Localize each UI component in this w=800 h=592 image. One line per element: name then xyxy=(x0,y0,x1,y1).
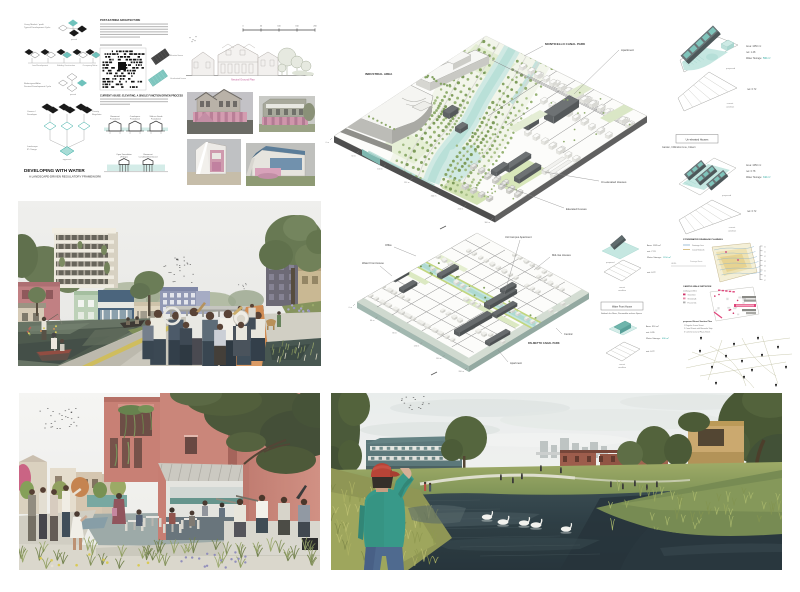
svg-text:condition: condition xyxy=(726,106,735,109)
svg-text:walkway profiles: walkway profiles xyxy=(683,290,697,293)
svg-text:Foundation: Foundation xyxy=(130,118,140,121)
svg-text:CAMPUS WALK NETWORK: CAMPUS WALK NETWORK xyxy=(683,285,712,288)
svg-text:Canal Network: Canal Network xyxy=(692,249,704,252)
svg-text:0 m: 0 m xyxy=(349,307,353,309)
svg-text:Land Development: Land Development xyxy=(32,64,48,67)
svg-text:proposed: proposed xyxy=(726,67,736,70)
svg-text:100 m: 100 m xyxy=(377,169,383,171)
svg-text:Setback for River, Permeable s: Setback for River, Permeable surface Spa… xyxy=(601,312,643,315)
svg-text:permit: permit xyxy=(70,93,76,96)
svg-text:310 m³: 310 m³ xyxy=(763,176,771,179)
svg-text:approval: approval xyxy=(63,158,72,161)
svg-text:Desired Development Cycle: Desired Development Cycle xyxy=(24,85,52,88)
svg-text:200 m: 200 m xyxy=(458,371,464,373)
svg-text:Owners /: Owners / xyxy=(27,110,36,113)
svg-text:Future link: Future link xyxy=(688,302,697,305)
svg-text:00: 00 xyxy=(764,247,766,249)
svg-text:Neutral Ground Plan: Neutral Ground Plan xyxy=(231,78,255,82)
svg-text:net: 0.95: net: 0.95 xyxy=(646,331,655,334)
svg-text:permit: permit xyxy=(71,38,77,41)
svg-text:current: current xyxy=(619,286,626,289)
svg-text:current: current xyxy=(729,226,736,229)
svg-text:06: 06 xyxy=(764,275,766,277)
svg-text:Water Storage:: Water Storage: xyxy=(746,57,762,60)
svg-text:Mid-rise Houses: Mid-rise Houses xyxy=(552,253,571,257)
svg-text:Developer: Developer xyxy=(27,113,37,116)
svg-text:current: current xyxy=(727,102,734,105)
svg-text:Elevated houses: Elevated houses xyxy=(566,207,587,211)
svg-text:Landscape: Landscape xyxy=(27,146,38,148)
svg-text:160 m: 160 m xyxy=(436,358,442,360)
svg-text:Typical Development Cycle: Typical Development Cycle xyxy=(24,26,51,29)
svg-text:proposed: proposed xyxy=(606,262,614,264)
svg-text:proposed: proposed xyxy=(722,194,732,197)
svg-text:Drainage Line: Drainage Line xyxy=(692,244,704,247)
svg-text:Garden, Infiltration Line, Cis: Garden, Infiltration Line, Cistern xyxy=(662,146,696,149)
svg-text:net: 0.72: net: 0.72 xyxy=(747,88,757,91)
svg-text:Un-elevated house: Un-elevated house xyxy=(170,77,186,80)
svg-text:Area: 316 m²: Area: 316 m² xyxy=(646,325,659,328)
svg-text:Building Construction: Building Construction xyxy=(57,64,75,67)
svg-text:net: 0.72: net: 0.72 xyxy=(647,271,656,274)
svg-text:net: 0.72: net: 0.72 xyxy=(646,350,655,353)
svg-text:01: 01 xyxy=(764,251,766,253)
svg-text:net: 0.72: net: 0.72 xyxy=(747,210,757,213)
svg-text:0 m: 0 m xyxy=(326,142,330,144)
svg-text:current: current xyxy=(619,363,626,366)
svg-text:net: 1.48: net: 1.48 xyxy=(746,51,756,54)
svg-text:DEVELOPING WITH WATER: DEVELOPING WITH WATER xyxy=(24,168,85,173)
svg-text:Water Storage:: Water Storage: xyxy=(746,176,762,179)
svg-text:690 m³: 690 m³ xyxy=(662,337,669,340)
svg-text:Area: 1185 m²: Area: 1185 m² xyxy=(647,244,661,247)
svg-text:Water Front House: Water Front House xyxy=(362,261,384,265)
svg-text:Un-elevated Houses: Un-elevated Houses xyxy=(601,180,627,184)
svg-text:condition: condition xyxy=(618,289,626,292)
svg-text:STORMWATER DRAINAGE PLANNING: STORMWATER DRAINAGE PLANNING xyxy=(683,238,723,241)
svg-text:Water Storage:: Water Storage: xyxy=(646,337,661,340)
svg-text:County: County xyxy=(92,110,100,113)
svg-text:IP Charge: IP Charge xyxy=(27,148,38,151)
svg-text:LEVEL: LEVEL xyxy=(671,263,677,265)
svg-text:Area: 1050 m²: Area: 1050 m² xyxy=(746,45,761,48)
svg-text:POST-KATRINA ARCHITECTURE: POST-KATRINA ARCHITECTURE xyxy=(100,18,141,22)
svg-text:07: 07 xyxy=(764,280,766,282)
svg-text:Drainage Basin: Drainage Basin xyxy=(690,261,702,263)
svg-text:250 m: 250 m xyxy=(458,209,464,211)
svg-text:04: 04 xyxy=(764,266,766,268)
svg-text:A LANDSCAPE-DRIVEN REGULATORY: A LANDSCAPE-DRIVEN REGULATORY FRAMEWORK xyxy=(29,175,101,179)
svg-text:CURRENT ABUSE: ELEVATING, A SI: CURRENT ABUSE: ELEVATING, A SINGLE FUNCT… xyxy=(100,95,183,98)
svg-text:200 m: 200 m xyxy=(431,195,437,197)
svg-text:Crazy Market / profit: Crazy Market / profit xyxy=(24,23,44,26)
svg-text:560 m³: 560 m³ xyxy=(763,57,771,60)
svg-text:Water Storage:: Water Storage: xyxy=(647,256,662,259)
svg-text:150 m: 150 m xyxy=(404,182,410,184)
svg-text:2 Canal Street with Bioswale: 2 Canal Street with Bioswale Strip xyxy=(684,327,712,330)
svg-text:1150 m³: 1150 m³ xyxy=(663,256,671,259)
svg-text:MONTICELLO CANAL PARK: MONTICELLO CANAL PARK xyxy=(545,42,586,46)
svg-text:40 m: 40 m xyxy=(370,320,375,322)
svg-text:Regulator: Regulator xyxy=(92,113,102,116)
svg-text:120 m: 120 m xyxy=(414,345,420,347)
svg-text:50 m: 50 m xyxy=(351,155,356,157)
svg-text:net: 0.78: net: 0.78 xyxy=(746,170,756,173)
svg-text:Greenline: Greenline xyxy=(688,294,696,297)
svg-text:net: 7.74: net: 7.74 xyxy=(647,250,656,253)
svg-text:Office: Office xyxy=(385,243,392,247)
svg-text:PALMETTO CANAL PARK: PALMETTO CANAL PARK xyxy=(528,341,560,345)
svg-text:1 Regular Green Street: 1 Regular Green Street xyxy=(684,324,704,327)
svg-text:Un-elevated Houses: Un-elevated Houses xyxy=(686,139,709,142)
svg-text:proposed Street Section Plan: proposed Street Section Plan xyxy=(683,320,713,323)
svg-text:UH Campus Apartment: UH Campus Apartment xyxy=(505,235,532,239)
svg-text:Foundation: Foundation xyxy=(110,118,120,121)
svg-text:Elevated house: Elevated house xyxy=(170,54,183,57)
svg-text:Water Front House: Water Front House xyxy=(612,306,633,309)
svg-text:Streetwalk: Streetwalk xyxy=(688,298,697,301)
svg-text:3 Commercial and Plaza Stree: 3 Commercial and Plaza Street xyxy=(684,330,711,333)
svg-text:03: 03 xyxy=(764,261,766,263)
svg-text:Area: 1050 m²: Area: 1050 m² xyxy=(746,164,761,167)
svg-text:300 m: 300 m xyxy=(484,222,490,224)
svg-text:condition: condition xyxy=(618,366,626,369)
svg-text:Occupancy/Value: Occupancy/Value xyxy=(83,65,98,67)
svg-text:condition: condition xyxy=(728,230,737,233)
svg-text:Condition/Reinforced: Condition/Reinforced xyxy=(139,156,158,159)
svg-text:Redesigned After: Redesigned After xyxy=(24,82,41,85)
svg-text:05: 05 xyxy=(764,271,766,273)
svg-text:Foundation: Foundation xyxy=(151,118,161,121)
svg-text:Apartment: Apartment xyxy=(621,48,634,52)
svg-text:80 m: 80 m xyxy=(392,333,397,335)
svg-text:02: 02 xyxy=(764,256,766,258)
svg-text:Central: Central xyxy=(564,332,573,336)
svg-text:Apartment: Apartment xyxy=(510,361,522,365)
svg-text:INDUSTRIAL AREA: INDUSTRIAL AREA xyxy=(365,72,393,76)
